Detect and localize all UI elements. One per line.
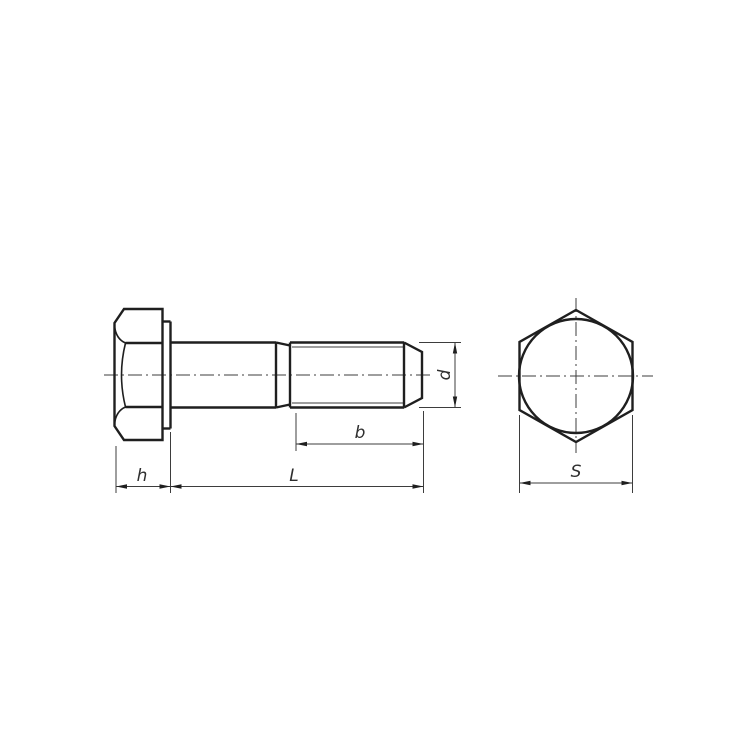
bolt-front-view	[498, 298, 653, 453]
dimension-L: L	[171, 466, 424, 489]
dim-label-d: d	[435, 369, 455, 380]
h-arrow-right	[160, 484, 171, 488]
b-arrow-right	[413, 442, 424, 446]
b-arrow-left	[296, 442, 307, 446]
l-arrow-right	[413, 484, 424, 488]
head-chamfer-arc-top	[115, 326, 126, 343]
dim-label-b: b	[355, 423, 366, 443]
s-arrow-left	[520, 481, 531, 485]
bolt-side-view	[104, 309, 433, 440]
runout-bottom	[276, 405, 290, 408]
s-arrow-right	[622, 481, 633, 485]
h-arrow-left	[116, 484, 127, 488]
technical-drawing-canvas: d b h L	[0, 0, 750, 750]
bolt-drawing-svg: d b h L	[0, 0, 750, 750]
runout-top	[276, 343, 290, 346]
dim-label-s: S	[571, 462, 582, 482]
dimension-b: b	[296, 411, 424, 493]
dim-label-h: h	[137, 466, 148, 486]
dim-label-l: L	[289, 466, 298, 486]
l-arrow-left	[171, 484, 182, 488]
dimensions: d b h L	[116, 343, 633, 494]
d-arrow-down	[453, 397, 457, 408]
d-arrow-up	[453, 343, 457, 354]
head-chamfer-arc-bottom	[115, 407, 126, 424]
